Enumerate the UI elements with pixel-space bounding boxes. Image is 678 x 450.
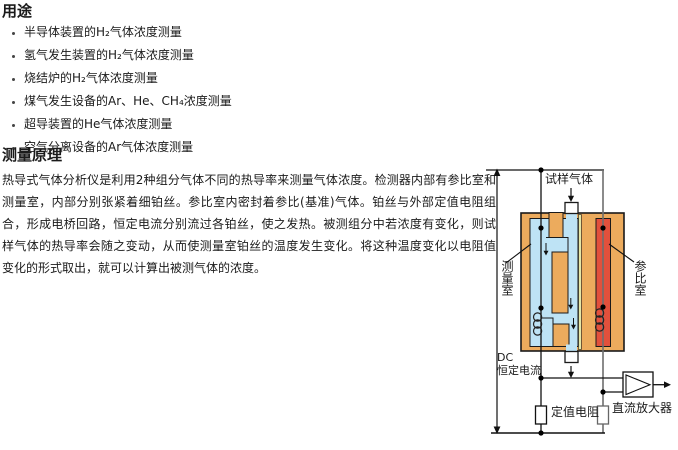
dc-label-line2: 恒定电流 [497, 364, 541, 377]
baffle [553, 324, 569, 347]
list-item: 烧结炉的H₂气体浓度测量 [8, 67, 448, 90]
list-item: 半导体装置的H₂气体浓度测量 [8, 21, 448, 44]
baffle [552, 252, 568, 313]
outlet-passage [566, 345, 577, 352]
baffle [549, 213, 563, 238]
fixed-resistor-right [598, 406, 609, 424]
junction-dot [538, 305, 543, 310]
gas-inlet-port [565, 203, 578, 214]
applications-list: 半导体装置的H₂气体浓度测量 氢气发生装置的H₂气体浓度测量 烧结炉的H₂气体浓… [8, 21, 448, 159]
detector-block [521, 203, 624, 363]
list-item: 空气分离设备的Ar气体浓度测量 [8, 136, 448, 159]
junction-dot [538, 225, 543, 230]
fixed-resistor-label: 定值电阻 [551, 406, 599, 419]
paragraph-line: 变化的形式取出，就可以计算出被测气体的浓度。 [2, 257, 496, 279]
dc-label-line1: DC [497, 351, 541, 364]
junction-dot [600, 225, 605, 230]
list-item: 氢气发生装置的H₂气体浓度测量 [8, 44, 448, 67]
applications-heading: 用途 [2, 2, 32, 20]
output-arrowhead [664, 381, 671, 388]
junction-dot [538, 167, 543, 172]
measuring-chamber-label: 测量室 [500, 260, 514, 296]
list-item: 超导装置的He气体浓度测量 [8, 113, 448, 136]
paragraph-line: 测量室，内部分别张紧着细铂丝。参比室内密封着参比(基准)气体。铂丝与外部定值电阻… [2, 191, 496, 213]
junction-dot [600, 304, 605, 309]
sample-gas-label: 试样气体 [545, 173, 593, 186]
paragraph-line: 样气体的热导率会随之变动，从而使测量室铂丝的温度发生变化。将这种温度变化以电阻值 [2, 235, 496, 257]
list-item: 煤气发生设备的Ar、He、CH₄浓度测量 [8, 90, 448, 113]
detector-schematic-diagram: 试样气体 测量室 参比室 DC 恒定电流 定值电阻 直流放大器 [480, 158, 678, 450]
junction-dot [538, 430, 543, 435]
gas-outlet-port [565, 352, 578, 363]
seal-strip [579, 215, 582, 350]
fixed-resistor-left [536, 406, 547, 424]
principle-heading: 测量原理 [2, 146, 62, 164]
principle-paragraph: 热导式气体分析仪是利用2种组分气体不同的热导率来测量气体浓度。检测器内部有参比室… [2, 169, 496, 279]
reference-chamber-label: 参比室 [633, 260, 647, 296]
outlet-arrowhead [568, 372, 574, 378]
dc-constant-current-label: DC 恒定电流 [497, 351, 541, 377]
paragraph-line: 合，形成电桥回路，恒定电流分别流过各铂丝，使之发热。被测组分中若浓度有变化，则试 [2, 213, 496, 235]
inlet-arrowhead [568, 196, 574, 202]
dc-amplifier-label: 直流放大器 [612, 402, 672, 415]
paragraph-line: 热导式气体分析仪是利用2种组分气体不同的热导率来测量气体浓度。检测器内部有参比室… [2, 169, 496, 191]
junction-dot [600, 389, 605, 394]
